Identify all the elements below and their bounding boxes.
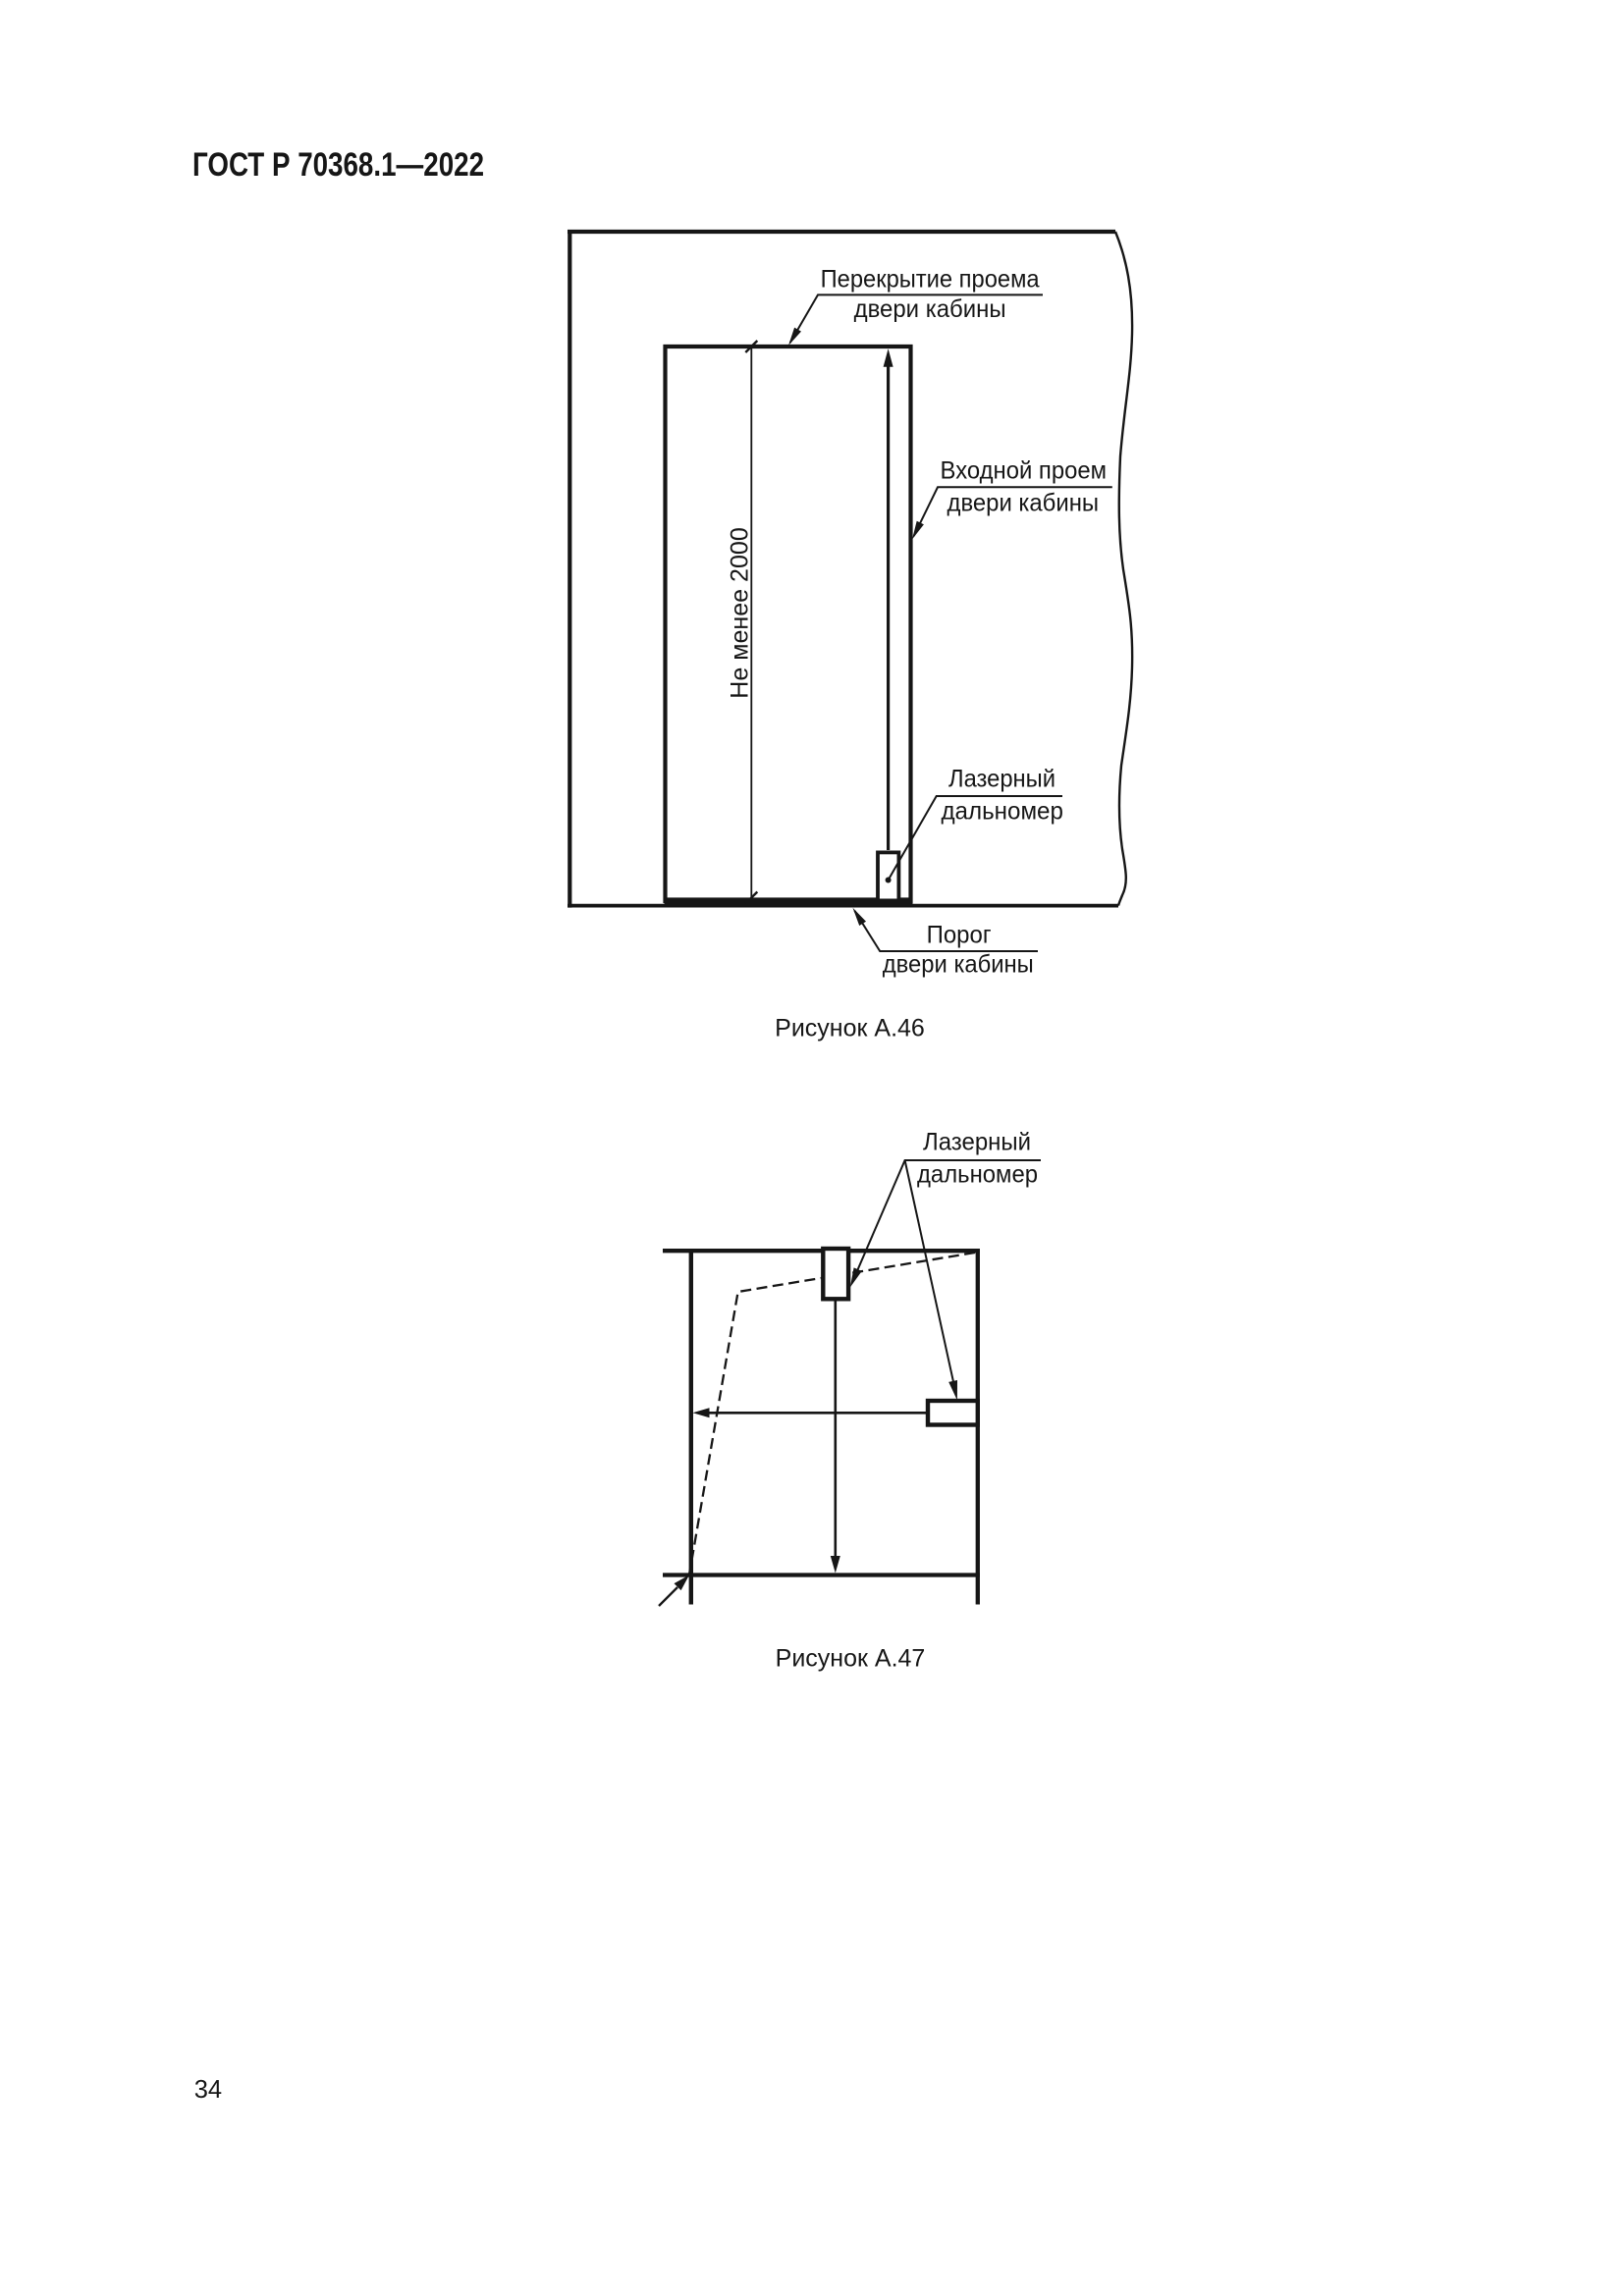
svg-text:Лазерный: Лазерный <box>923 1129 1031 1156</box>
svg-text:дальномер: дальномер <box>941 798 1063 826</box>
svg-text:Рисунок А.47: Рисунок А.47 <box>776 1645 926 1673</box>
svg-text:Рисунок А.46: Рисунок А.46 <box>775 1015 925 1042</box>
svg-text:Лазерный: Лазерный <box>948 766 1056 793</box>
svg-text:ГОСТ Р 70368.1—2022: ГОСТ Р 70368.1—2022 <box>192 146 484 184</box>
svg-text:двери кабины: двери кабины <box>854 295 1006 323</box>
svg-text:34: 34 <box>194 2076 222 2104</box>
svg-text:двери кабины: двери кабины <box>947 490 1100 517</box>
svg-text:Порог: Порог <box>927 922 992 949</box>
svg-text:двери кабины: двери кабины <box>883 951 1034 979</box>
svg-text:дальномер: дальномер <box>917 1161 1038 1189</box>
svg-text:Входной проем: Входной проем <box>941 457 1108 485</box>
svg-text:Не менее 2000: Не менее 2000 <box>727 527 754 699</box>
svg-text:Перекрытие проема: Перекрытие проема <box>821 265 1040 293</box>
